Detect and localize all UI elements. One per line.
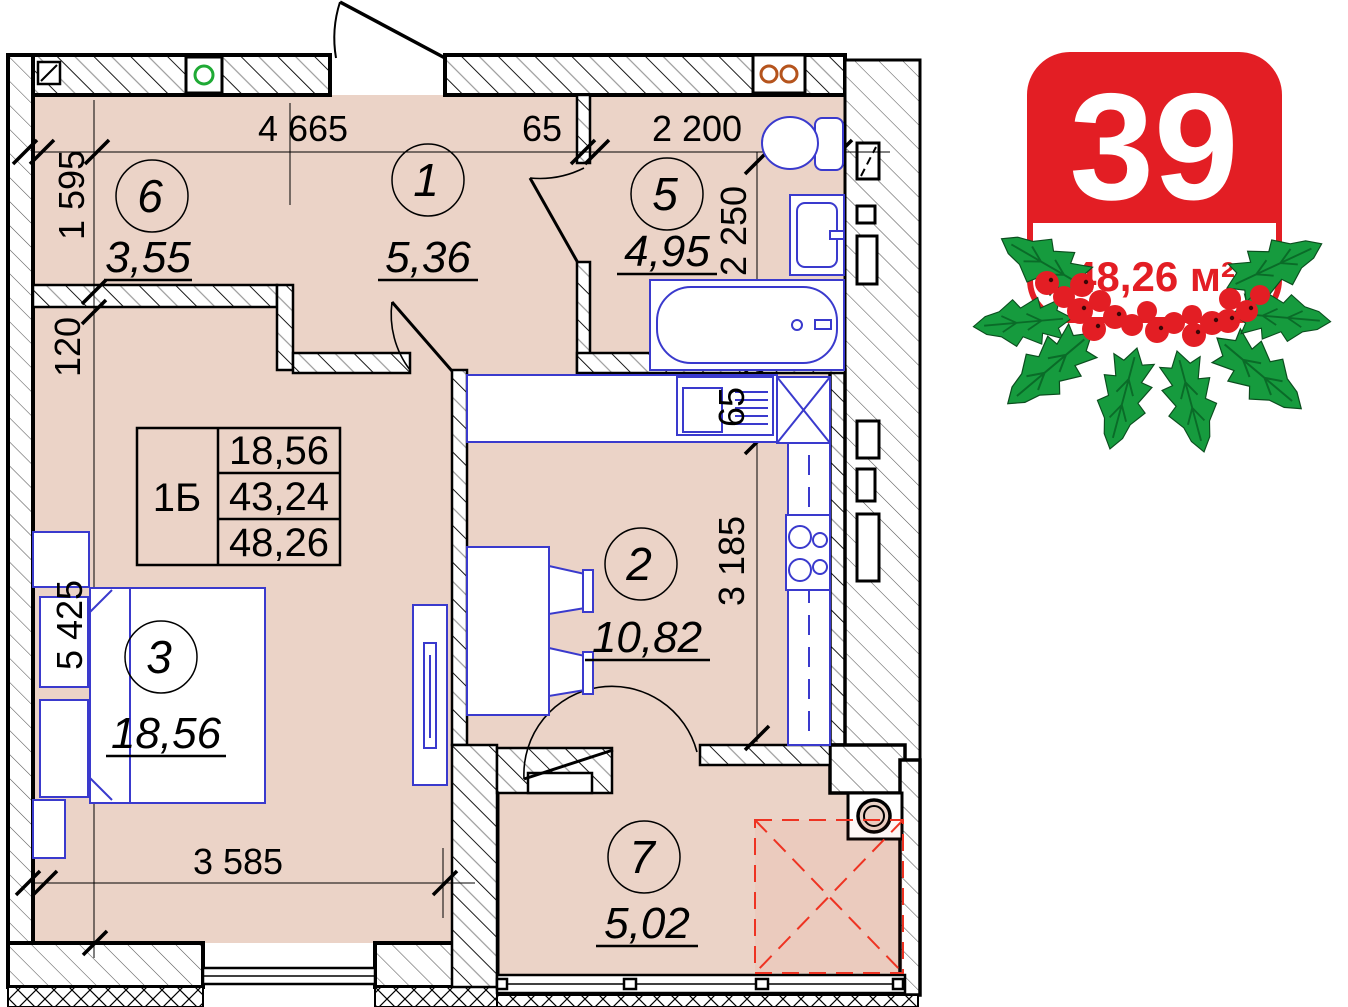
svg-text:1: 1 [413, 154, 439, 206]
floorplan-canvas: 4 665 65 2 200 1 595 120 5 425 3 585 2 2… [0, 0, 1348, 1007]
svg-text:18,56: 18,56 [111, 709, 222, 758]
chair-icon [549, 566, 585, 614]
plan-type: 1Б [153, 476, 202, 520]
kitchen-side-counter-icon [788, 443, 830, 745]
vent-icon [186, 57, 222, 93]
toilet-icon [762, 117, 843, 170]
cabinet-icon [33, 800, 65, 858]
living-area: 18,56 [229, 429, 329, 473]
loggia-details [755, 793, 903, 973]
dim-left-room6: 1 595 [51, 150, 92, 240]
apartment-badge: 39 48,26 м² [942, 33, 1348, 473]
reserved-zone [755, 820, 903, 973]
floor-plan: 4 665 65 2 200 1 595 120 5 425 3 585 2 2… [0, 0, 940, 1007]
svg-text:10,82: 10,82 [592, 613, 702, 662]
apartment-number: 39 [1069, 62, 1238, 232]
bathroom-sink-icon [790, 195, 844, 275]
dim-kitchen-height: 3 185 [711, 516, 752, 606]
dim-bath-height: 2 250 [713, 186, 754, 276]
socket-box-icon [753, 55, 805, 93]
apartment-area: 43,24 [229, 475, 329, 519]
entry-door [334, 2, 445, 58]
svg-text:6: 6 [137, 170, 163, 222]
total-area: 48,26 [229, 521, 329, 565]
stove-icon [786, 515, 830, 590]
tv-icon [413, 605, 447, 785]
bathtub-icon [650, 280, 844, 370]
svg-text:5,36: 5,36 [385, 233, 471, 282]
chair-icon [549, 648, 585, 696]
dim-top-wall: 65 [522, 108, 562, 149]
balcony-window [497, 975, 905, 993]
electrical-box-icon [38, 62, 60, 84]
fridge-icon [777, 377, 830, 443]
svg-text:7: 7 [629, 831, 656, 883]
bed-icon [90, 588, 265, 803]
dim-top-bath: 2 200 [652, 108, 742, 149]
wardrobe-icon [33, 532, 89, 587]
dim-kitchen-counter: 65 [711, 387, 752, 427]
svg-text:2: 2 [625, 538, 652, 590]
dim-left-room3: 5 425 [49, 580, 90, 670]
dim-top-width: 4 665 [258, 108, 348, 149]
dim-left-wall: 120 [47, 317, 88, 377]
dim-bottom-room3: 3 585 [193, 841, 283, 882]
nightstand-icon [40, 700, 88, 797]
bedroom-window [203, 968, 375, 984]
svg-text:4,95: 4,95 [624, 227, 710, 276]
chair-icon [583, 570, 593, 612]
svg-text:3,55: 3,55 [105, 233, 191, 282]
svg-text:5: 5 [652, 168, 678, 220]
svg-text:5,02: 5,02 [604, 899, 690, 948]
svg-text:3: 3 [146, 631, 172, 683]
